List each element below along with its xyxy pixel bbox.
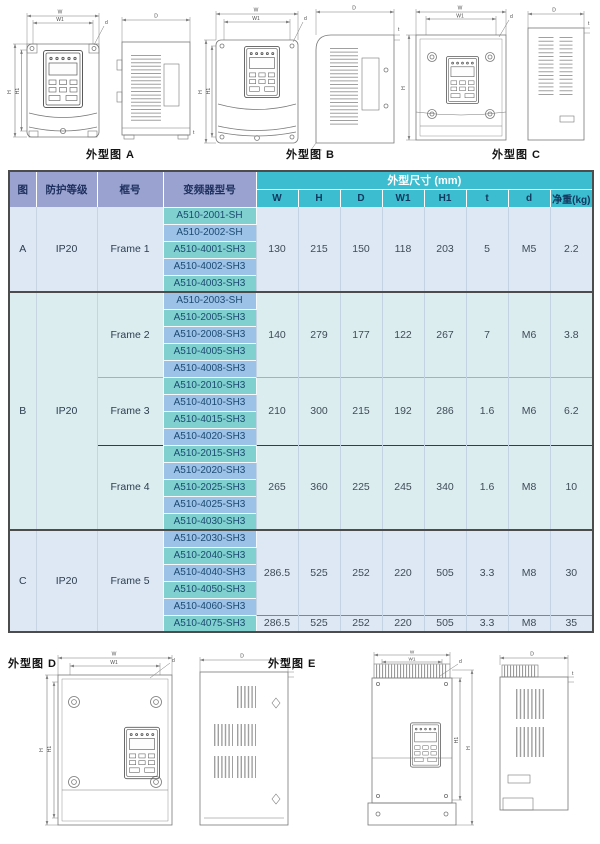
dim-d-hole-label: d — [304, 16, 307, 22]
dim-w1-label: W1 — [252, 16, 260, 22]
dim-d-hole-label: d — [105, 20, 108, 26]
model-cell: A510-2010-SH3 — [163, 377, 256, 394]
dim-d-hole-label: d — [459, 659, 462, 665]
figure-e-side: D t — [500, 652, 574, 811]
fig-cell: B — [9, 292, 36, 530]
value-h: 300 — [298, 377, 340, 445]
value-weight: 10 — [550, 445, 593, 530]
value-h: 215 — [298, 207, 340, 292]
model-cell: A510-4040-SH3 — [163, 564, 256, 581]
value-w: 286.5 — [256, 615, 298, 632]
dim-d-hole-label: d — [172, 658, 175, 664]
model-cell: A510-2005-SH3 — [163, 309, 256, 326]
value-w: 286.5 — [256, 530, 298, 615]
header-size-group: 外型尺寸 (mm) — [256, 171, 593, 189]
dim-h-label: H — [401, 86, 407, 90]
model-cell: A510-4030-SH3 — [163, 513, 256, 530]
header-fig: 图 — [9, 171, 36, 207]
caption-figure-c: 外型图 C — [492, 146, 541, 162]
dim-w1-label: W1 — [56, 17, 64, 23]
dim-w-label: W — [410, 650, 415, 655]
header-protection: 防护等级 — [36, 171, 97, 207]
dim-w-label: W — [458, 6, 463, 12]
model-cell: A510-4002-SH3 — [163, 258, 256, 275]
caption-figure-d: 外型图 D — [8, 655, 57, 671]
col-header-weight: 净重(kg) — [550, 189, 593, 207]
col-header-h1: H1 — [424, 189, 466, 207]
dim-depth-label: D — [552, 8, 556, 14]
dim-w-label: W — [58, 10, 63, 16]
value-w1: 245 — [382, 445, 424, 530]
value-w1: 192 — [382, 377, 424, 445]
dim-w1-label: W1 — [456, 14, 464, 20]
dim-depth-label: D — [240, 654, 244, 660]
value-d: 177 — [340, 292, 382, 377]
value-t: 5 — [466, 207, 508, 292]
value-d: 252 — [340, 615, 382, 632]
model-cell: A510-2040-SH3 — [163, 547, 256, 564]
manual-page: { "captions": { "a": "外型图 A", "b": "外型图 … — [0, 0, 600, 844]
model-cell: A510-2008-SH3 — [163, 326, 256, 343]
value-weight: 30 — [550, 530, 593, 615]
model-cell: A510-4003-SH3 — [163, 275, 256, 292]
value-d: 150 — [340, 207, 382, 292]
caption-figure-a: 外型图 A — [86, 146, 135, 162]
value-hole: M8 — [508, 615, 550, 632]
model-cell: A510-4050-SH3 — [163, 581, 256, 598]
caption-figure-e: 外型图 E — [268, 655, 316, 671]
dim-h1-label: H1 — [206, 88, 212, 95]
value-w1: 220 — [382, 530, 424, 615]
header-frame: 框号 — [97, 171, 163, 207]
value-h1: 505 — [424, 615, 466, 632]
model-cell: A510-4020-SH3 — [163, 428, 256, 445]
model-cell: A510-2025-SH3 — [163, 479, 256, 496]
header-model: 变频器型号 — [163, 171, 256, 207]
fig-cell: A — [9, 207, 36, 292]
figure-d-front: W W1 H H1 d — [39, 652, 175, 826]
value-w1: 220 — [382, 615, 424, 632]
model-cell: A510-2030-SH3 — [163, 530, 256, 547]
dim-depth-label: D — [530, 652, 534, 658]
dimension-spec-table: 图 防护等级 框号 变频器型号 外型尺寸 (mm) W H D W1 H1 t … — [8, 170, 594, 633]
model-cell: A510-2002-SH — [163, 224, 256, 241]
col-header-w1: W1 — [382, 189, 424, 207]
dim-t-label: t — [193, 130, 195, 136]
dim-t-label: t — [398, 27, 400, 33]
value-h: 360 — [298, 445, 340, 530]
dim-t-label: t — [572, 671, 574, 677]
value-h: 279 — [298, 292, 340, 377]
dim-w-label: W — [112, 652, 117, 658]
figure-b-front: W W1 H H1 d — [198, 8, 307, 144]
dim-d-hole-label: d — [510, 14, 513, 20]
value-t: 3.3 — [466, 615, 508, 632]
value-t: 7 — [466, 292, 508, 377]
model-cell: A510-4005-SH3 — [163, 343, 256, 360]
frame-cell: Frame 2 — [97, 292, 163, 377]
value-weight: 3.8 — [550, 292, 593, 377]
frame-cell: Frame 4 — [97, 445, 163, 530]
value-w1: 122 — [382, 292, 424, 377]
figure-a-front: W W1 H H1 d — [7, 10, 108, 138]
protection-cell: IP20 — [36, 530, 97, 632]
value-hole: M8 — [508, 530, 550, 615]
figure-a-side: D t — [117, 14, 195, 140]
caption-figure-b: 外型图 B — [286, 146, 335, 162]
value-hole: M8 — [508, 445, 550, 530]
model-cell: A510-4015-SH3 — [163, 411, 256, 428]
dim-h-label: H — [39, 748, 45, 752]
frame-cell: Frame 5 — [97, 530, 163, 632]
model-cell: A510-4025-SH3 — [163, 496, 256, 513]
model-cell: A510-4008-SH3 — [163, 360, 256, 377]
model-cell: A510-4001-SH3 — [163, 241, 256, 258]
figure-c-side: D t — [528, 8, 590, 141]
value-h1: 340 — [424, 445, 466, 530]
model-cell: A510-4010-SH3 — [163, 394, 256, 411]
dim-h1-label: H1 — [47, 746, 53, 753]
value-weight: 2.2 — [550, 207, 593, 292]
dim-t-label: t — [588, 21, 590, 27]
col-header-hole: d — [508, 189, 550, 207]
fig-cell: C — [9, 530, 36, 632]
value-d: 252 — [340, 530, 382, 615]
col-header-d: D — [340, 189, 382, 207]
value-w1: 118 — [382, 207, 424, 292]
frame-cell: Frame 1 — [97, 207, 163, 292]
col-header-t: t — [466, 189, 508, 207]
dim-h1-label: H1 — [15, 88, 21, 95]
dim-h-label: H — [198, 90, 204, 94]
value-weight: 35 — [550, 615, 593, 632]
dim-depth-label: D — [154, 14, 158, 20]
model-cell: A510-2020-SH3 — [163, 462, 256, 479]
value-h1: 267 — [424, 292, 466, 377]
value-h1: 203 — [424, 207, 466, 292]
value-hole: M6 — [508, 292, 550, 377]
value-w: 210 — [256, 377, 298, 445]
model-cell: A510-4075-SH3 — [163, 615, 256, 632]
value-t: 1.6 — [466, 377, 508, 445]
value-d: 215 — [340, 377, 382, 445]
dim-w-label: W — [254, 8, 259, 14]
dim-h1-label: H1 — [454, 737, 460, 744]
protection-cell: IP20 — [36, 292, 97, 530]
model-cell: A510-4060-SH3 — [163, 598, 256, 615]
value-t: 3.3 — [466, 530, 508, 615]
top-outline-drawings: W W1 H H1 d D t W W1 H H1 — [0, 0, 600, 165]
frame-cell: Frame 3 — [97, 377, 163, 445]
value-w: 265 — [256, 445, 298, 530]
figure-e-front: W W1 H1 H d — [368, 650, 474, 825]
model-cell: A510-2003-SH — [163, 292, 256, 309]
dim-w1-label: W1 — [409, 657, 416, 662]
value-h: 525 — [298, 530, 340, 615]
dim-h-label: H — [7, 90, 13, 94]
dim-h-label: H — [466, 746, 472, 750]
protection-cell: IP20 — [36, 207, 97, 292]
figure-d-side: D t — [200, 654, 294, 826]
dim-depth-label: D — [352, 6, 356, 12]
value-w: 140 — [256, 292, 298, 377]
value-h1: 286 — [424, 377, 466, 445]
figure-b-side: D t — [311, 6, 400, 151]
value-h: 525 — [298, 615, 340, 632]
value-h1: 505 — [424, 530, 466, 615]
col-header-w: W — [256, 189, 298, 207]
value-weight: 6.2 — [550, 377, 593, 445]
value-w: 130 — [256, 207, 298, 292]
value-hole: M6 — [508, 377, 550, 445]
value-hole: M5 — [508, 207, 550, 292]
dim-w1-label: W1 — [110, 660, 118, 666]
value-t: 1.6 — [466, 445, 508, 530]
model-cell: A510-2015-SH3 — [163, 445, 256, 462]
col-header-h: H — [298, 189, 340, 207]
model-cell: A510-2001-SH — [163, 207, 256, 224]
figure-c-front: W W1 H d — [401, 6, 513, 141]
bottom-outline-drawings: W W1 H H1 d D t W — [0, 650, 600, 844]
value-d: 225 — [340, 445, 382, 530]
